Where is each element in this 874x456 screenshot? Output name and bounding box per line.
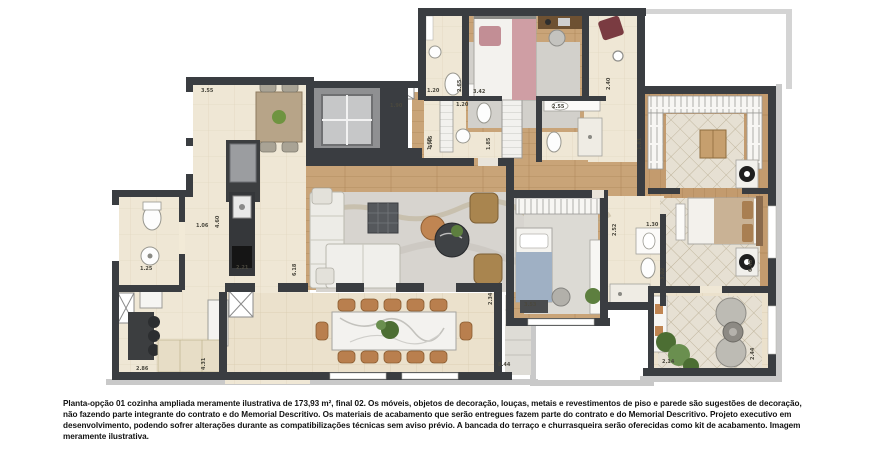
bed-2-blanket [516,252,552,302]
dimension-label: 1.90 [390,103,403,109]
dimension-label: 4.60 [215,215,221,228]
coffee-table-plant [451,225,463,237]
dimension-label: 2.55 [552,104,565,110]
dimension-label: 3.55 [201,88,214,94]
dimension-label: 3.02 [660,267,666,280]
bed-2-pillow [520,234,548,248]
kitchen-table-plant [272,110,286,124]
sink [643,233,655,249]
dimension-label: 1.30 [646,222,659,228]
master-headboard [756,196,763,246]
toilet [641,258,655,278]
kitchen-cabinets [158,340,226,372]
plant [585,288,601,304]
dimension-label: 1.81 [637,137,643,150]
dimension-label: 2.86 [136,366,149,372]
mirror [613,51,623,61]
sofa-pillow [312,188,332,204]
dimension-label: 6.48 [748,259,754,272]
cooktop [230,144,256,182]
master-pillow-1 [742,201,753,219]
sink [456,129,470,143]
dimension-label: 1.65 [427,137,433,150]
dimension-label: 1.20 [427,88,440,94]
dimension-label: 4.31 [201,357,207,370]
closet-rack-top [648,96,762,113]
dimension-label: 1.20 [456,102,469,108]
elevator [312,88,382,152]
shower [440,100,453,152]
dimension-label: 2.44 [750,347,756,360]
desk-chair-1 [549,30,565,46]
pouf [552,288,570,306]
floor-plan: 3.551.901.451.202.653.421.201.651.852.55… [0,0,874,456]
dimension-label: 3.53 [524,302,537,308]
dimension-label: 2.40 [606,77,612,90]
toilet [477,103,491,123]
armchair-2 [474,254,502,284]
side-table-square [368,203,398,233]
dimension-label: 1.06 [196,223,209,229]
dimension-label: 8.44 [498,362,511,368]
disclaimer-caption: Planta-opção 01 cozinha ampliada meramen… [63,399,817,443]
toilet [547,132,561,152]
armchair-1 [470,193,498,223]
dimension-label: 1.25 [140,266,153,272]
dimension-label: 6.18 [292,263,298,276]
dimension-label: 2.52 [612,223,618,236]
door [426,16,433,40]
screenshot-canvas: 3.551.901.451.202.653.421.201.651.852.55… [0,0,874,456]
bed-1-pillow [479,26,501,46]
shower [610,284,650,304]
sink [429,46,441,58]
dimension-label: 3.42 [473,89,486,95]
dimension-label: 2.34 [488,292,494,305]
dimension-label: 2.21 [236,265,249,271]
bed-1-blanket [512,16,536,100]
closet-rack [516,198,600,214]
master-pillow-2 [742,224,753,242]
closet-rack-left [648,113,663,169]
bed-bench [676,204,685,240]
dimension-label: 2.65 [457,79,463,92]
dimension-label: 2.14 [662,359,675,365]
dimension-label: 1.85 [486,137,492,150]
